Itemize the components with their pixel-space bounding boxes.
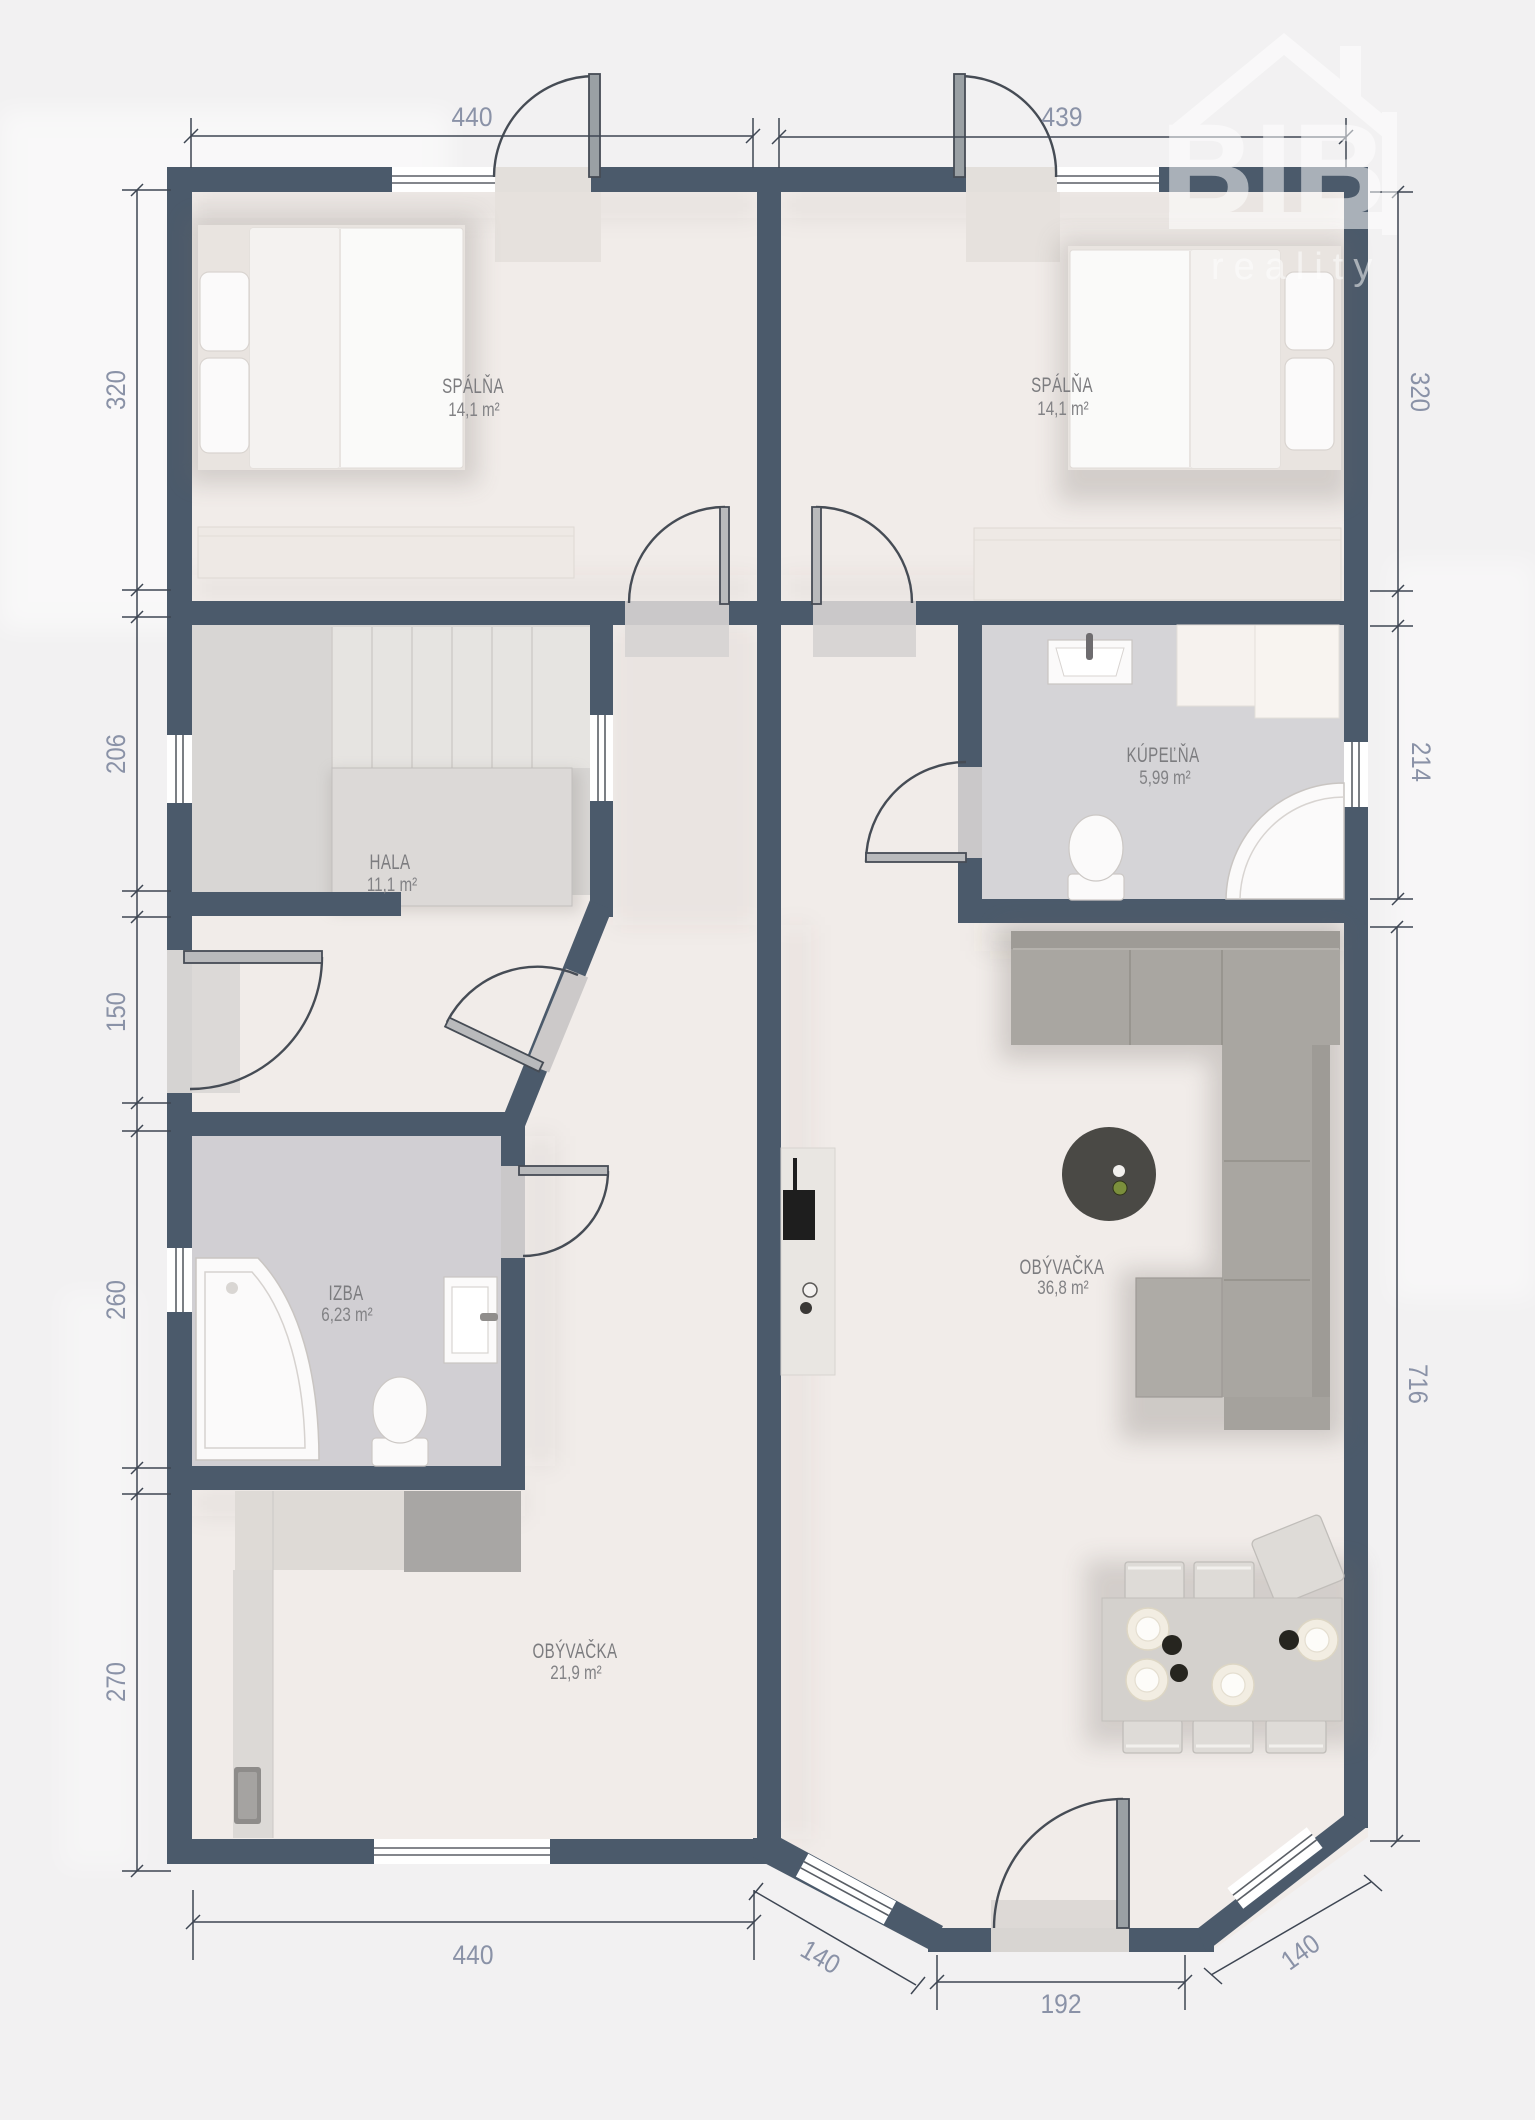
svg-text:440: 440 — [452, 102, 493, 132]
svg-text:192: 192 — [1041, 1989, 1082, 2019]
svg-text:IZBA: IZBA — [328, 1280, 363, 1304]
svg-text:reality: reality — [1211, 246, 1382, 288]
svg-text:440: 440 — [453, 1940, 494, 1970]
svg-text:SPÁLŇA: SPÁLŇA — [1031, 372, 1093, 396]
svg-text:11,1 m²: 11,1 m² — [367, 873, 418, 895]
svg-text:OBÝVAČKA: OBÝVAČKA — [533, 1638, 618, 1662]
svg-text:SPÁLŇA: SPÁLŇA — [442, 373, 504, 397]
svg-text:5,99 m²: 5,99 m² — [1139, 766, 1191, 788]
svg-text:36,8 m²: 36,8 m² — [1037, 1276, 1089, 1298]
svg-text:320: 320 — [1405, 372, 1435, 412]
svg-text:214: 214 — [1406, 742, 1436, 782]
svg-text:716: 716 — [1403, 1364, 1433, 1404]
svg-text:206: 206 — [101, 734, 131, 774]
svg-text:150: 150 — [101, 992, 131, 1032]
svg-text:14,1 m²: 14,1 m² — [1037, 397, 1089, 419]
svg-text:HALA: HALA — [370, 849, 411, 873]
svg-text:14,1 m²: 14,1 m² — [448, 398, 500, 420]
svg-text:320: 320 — [101, 370, 131, 410]
svg-text:260: 260 — [101, 1280, 131, 1320]
svg-text:OBÝVAČKA: OBÝVAČKA — [1020, 1254, 1105, 1278]
svg-text:6,23 m²: 6,23 m² — [321, 1303, 373, 1325]
svg-text:439: 439 — [1042, 102, 1083, 132]
svg-text:KÚPEĽŇA: KÚPEĽŇA — [1126, 742, 1199, 766]
svg-text:21,9 m²: 21,9 m² — [550, 1661, 602, 1683]
svg-text:270: 270 — [101, 1662, 131, 1702]
